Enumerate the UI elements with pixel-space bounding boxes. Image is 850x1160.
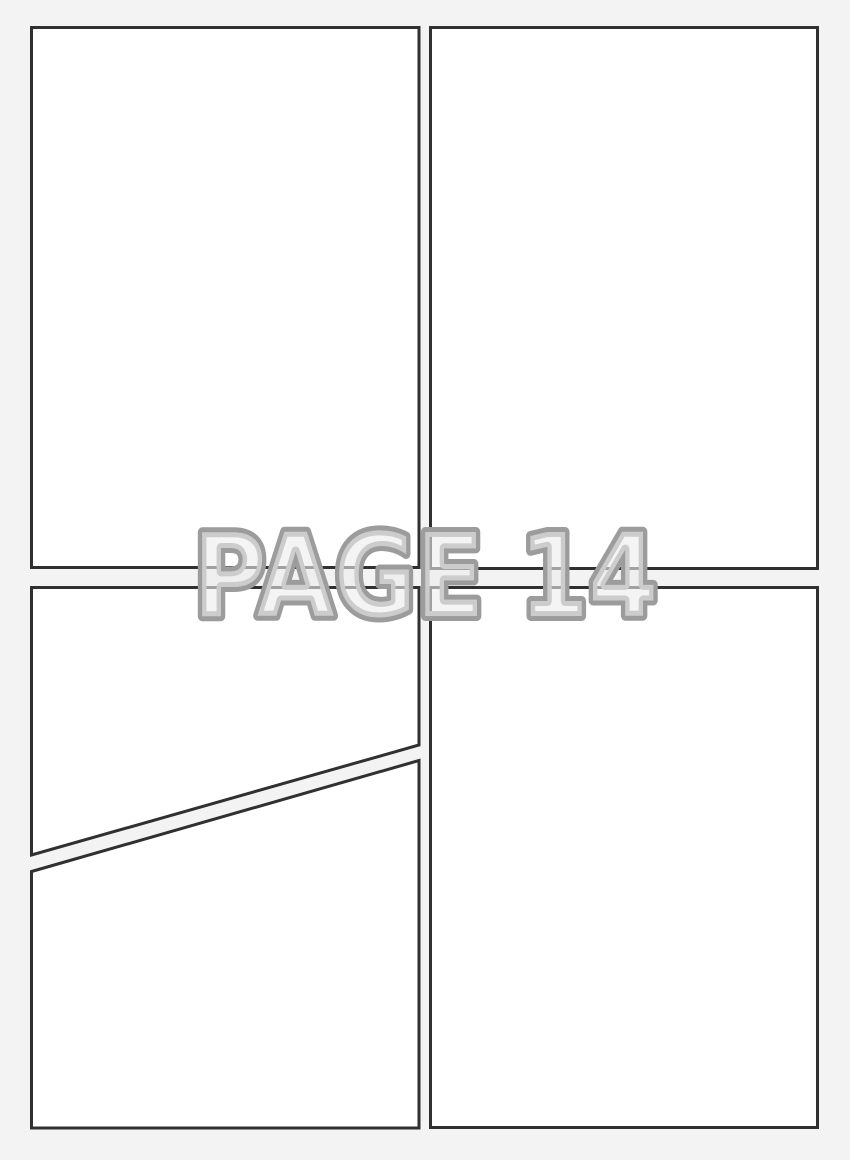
panel-top-right [431, 28, 818, 569]
comic-page-template: PAGE 14 PAGE 14 [0, 0, 850, 1160]
panel-bottom-right [431, 588, 818, 1128]
page-number-text: PAGE 14 [193, 510, 658, 644]
page-number-watermark: PAGE 14 PAGE 14 [193, 510, 658, 644]
panel-top-left [32, 28, 420, 568]
page-canvas: PAGE 14 PAGE 14 [0, 0, 850, 1160]
